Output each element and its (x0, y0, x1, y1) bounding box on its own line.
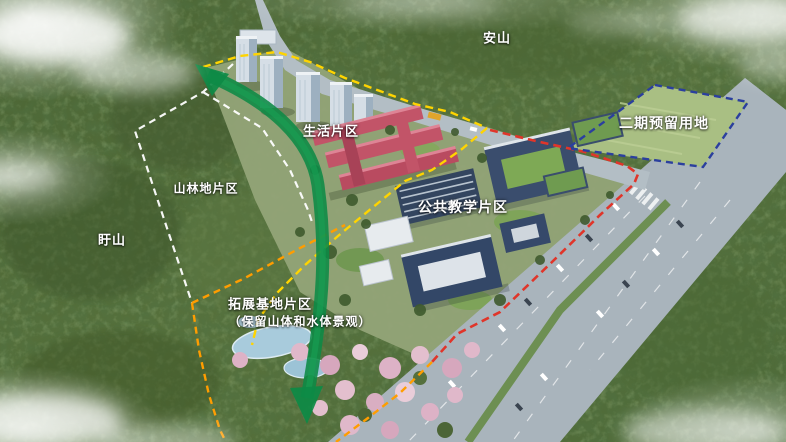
aerial-rendering-artwork (0, 0, 786, 442)
label-xushan-mountain: 盱山 (98, 230, 126, 249)
label-expansion-note: （保留山体和水体景观） (228, 313, 371, 330)
label-anshan-mountain: 安山 (483, 28, 511, 47)
label-expansion-area: 拓展基地片区 (228, 294, 312, 313)
label-forest-area: 山林地片区 (173, 180, 238, 197)
label-teaching-area: 公共教学片区 (418, 197, 508, 217)
campus-masterplan-aerial-rendering: 安山 二期预留用地 生活片区 山林地片区 盱山 公共教学片区 拓展基地片区 （保… (0, 0, 786, 442)
label-phase2-reserved: 二期预留用地 (619, 113, 709, 133)
label-living-area: 生活片区 (303, 121, 359, 140)
